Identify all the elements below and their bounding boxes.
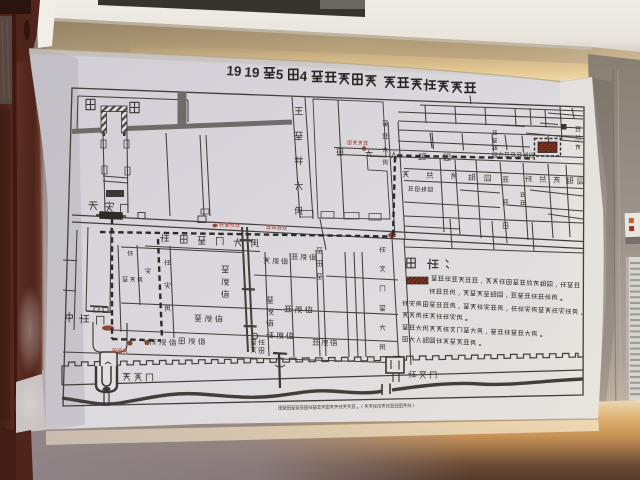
svg-text:9: 9 [233,64,242,80]
svg-text:9: 9 [251,65,260,81]
